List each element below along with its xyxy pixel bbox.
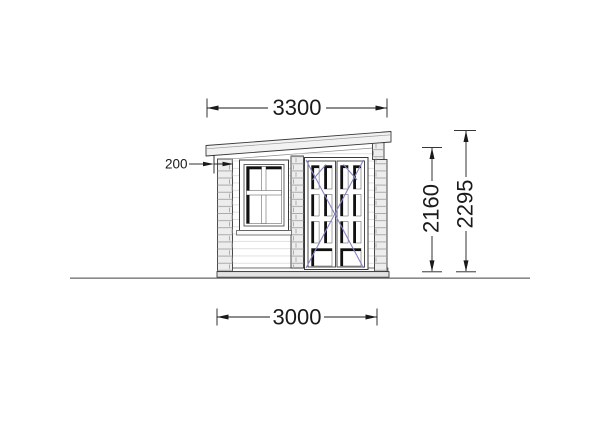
dim-label-wall-length: 3000 [273, 304, 322, 329]
double-door [305, 158, 369, 270]
door-panel [308, 161, 336, 267]
middle-log-stack [291, 156, 304, 268]
drawing-canvas: 3300 200 2160 2295 3000 [0, 0, 600, 424]
dim-total-height: 2295 [453, 130, 478, 271]
top-right-log-stack [373, 143, 385, 160]
shed-elevation [206, 132, 391, 278]
dim-label-total-height: 2295 [453, 180, 478, 229]
door-panel-right [337, 161, 365, 267]
right-corner-log-stack [375, 160, 388, 272]
window [237, 160, 292, 235]
elevation-drawing: 3300 200 2160 2295 3000 [0, 0, 600, 424]
dim-wall-height: 2160 [419, 148, 444, 272]
foundation-base [217, 272, 389, 278]
dim-wall-length: 3000 [217, 304, 377, 329]
dim-label-wall-height: 2160 [419, 184, 444, 233]
window-muntin-horizontal [247, 191, 282, 196]
dim-roof-length: 3300 [207, 95, 387, 120]
left-corner-log-stack [218, 159, 233, 272]
dim-label-roof-length: 3300 [273, 95, 322, 120]
window-sill [237, 231, 292, 236]
dim-label-roof-overhang: 200 [165, 156, 188, 171]
